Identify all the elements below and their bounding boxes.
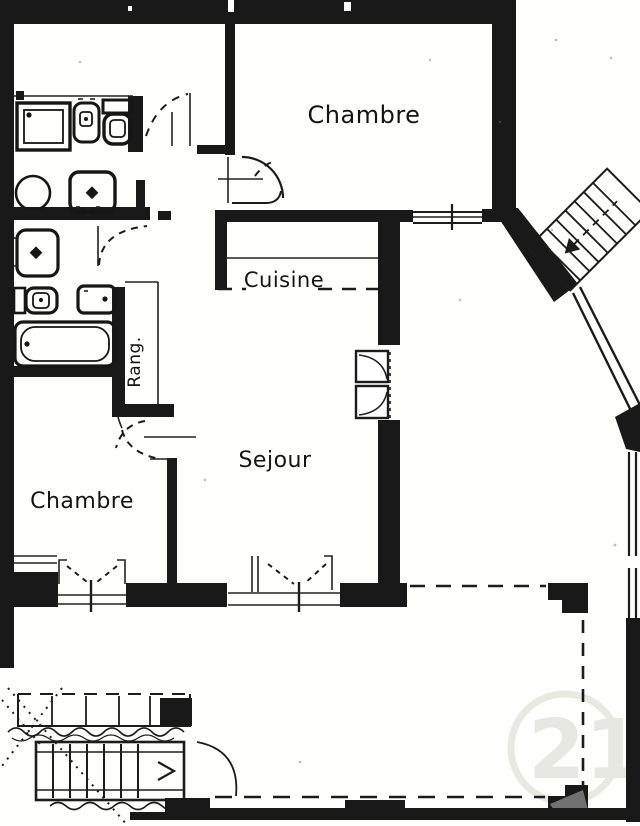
round-basin-icon bbox=[16, 176, 50, 210]
room-kitchen bbox=[228, 225, 376, 285]
floor-plan-drawing: 21 bbox=[0, 0, 640, 826]
entry-door-icon bbox=[413, 204, 482, 230]
staircase-lower-icon bbox=[0, 584, 236, 826]
bathtub-icon bbox=[15, 322, 115, 366]
bathroom-2 bbox=[14, 230, 115, 366]
toilet-icon bbox=[103, 100, 132, 144]
room-bedroom-top bbox=[240, 30, 490, 205]
room-living bbox=[190, 300, 375, 580]
shower-icon bbox=[17, 103, 70, 150]
washbasin-2-icon bbox=[14, 230, 58, 276]
label-storage: Rang. bbox=[125, 336, 145, 387]
floor-plan: 21 bbox=[0, 0, 640, 826]
room-bedroom-bottom bbox=[16, 380, 164, 580]
bathroom-1 bbox=[16, 99, 132, 212]
washbasin-3-icon bbox=[78, 286, 115, 313]
toilet-2-icon bbox=[14, 288, 57, 313]
washbasin-icon bbox=[70, 172, 115, 212]
bidet-icon bbox=[74, 99, 99, 142]
terrace-area bbox=[220, 612, 570, 792]
